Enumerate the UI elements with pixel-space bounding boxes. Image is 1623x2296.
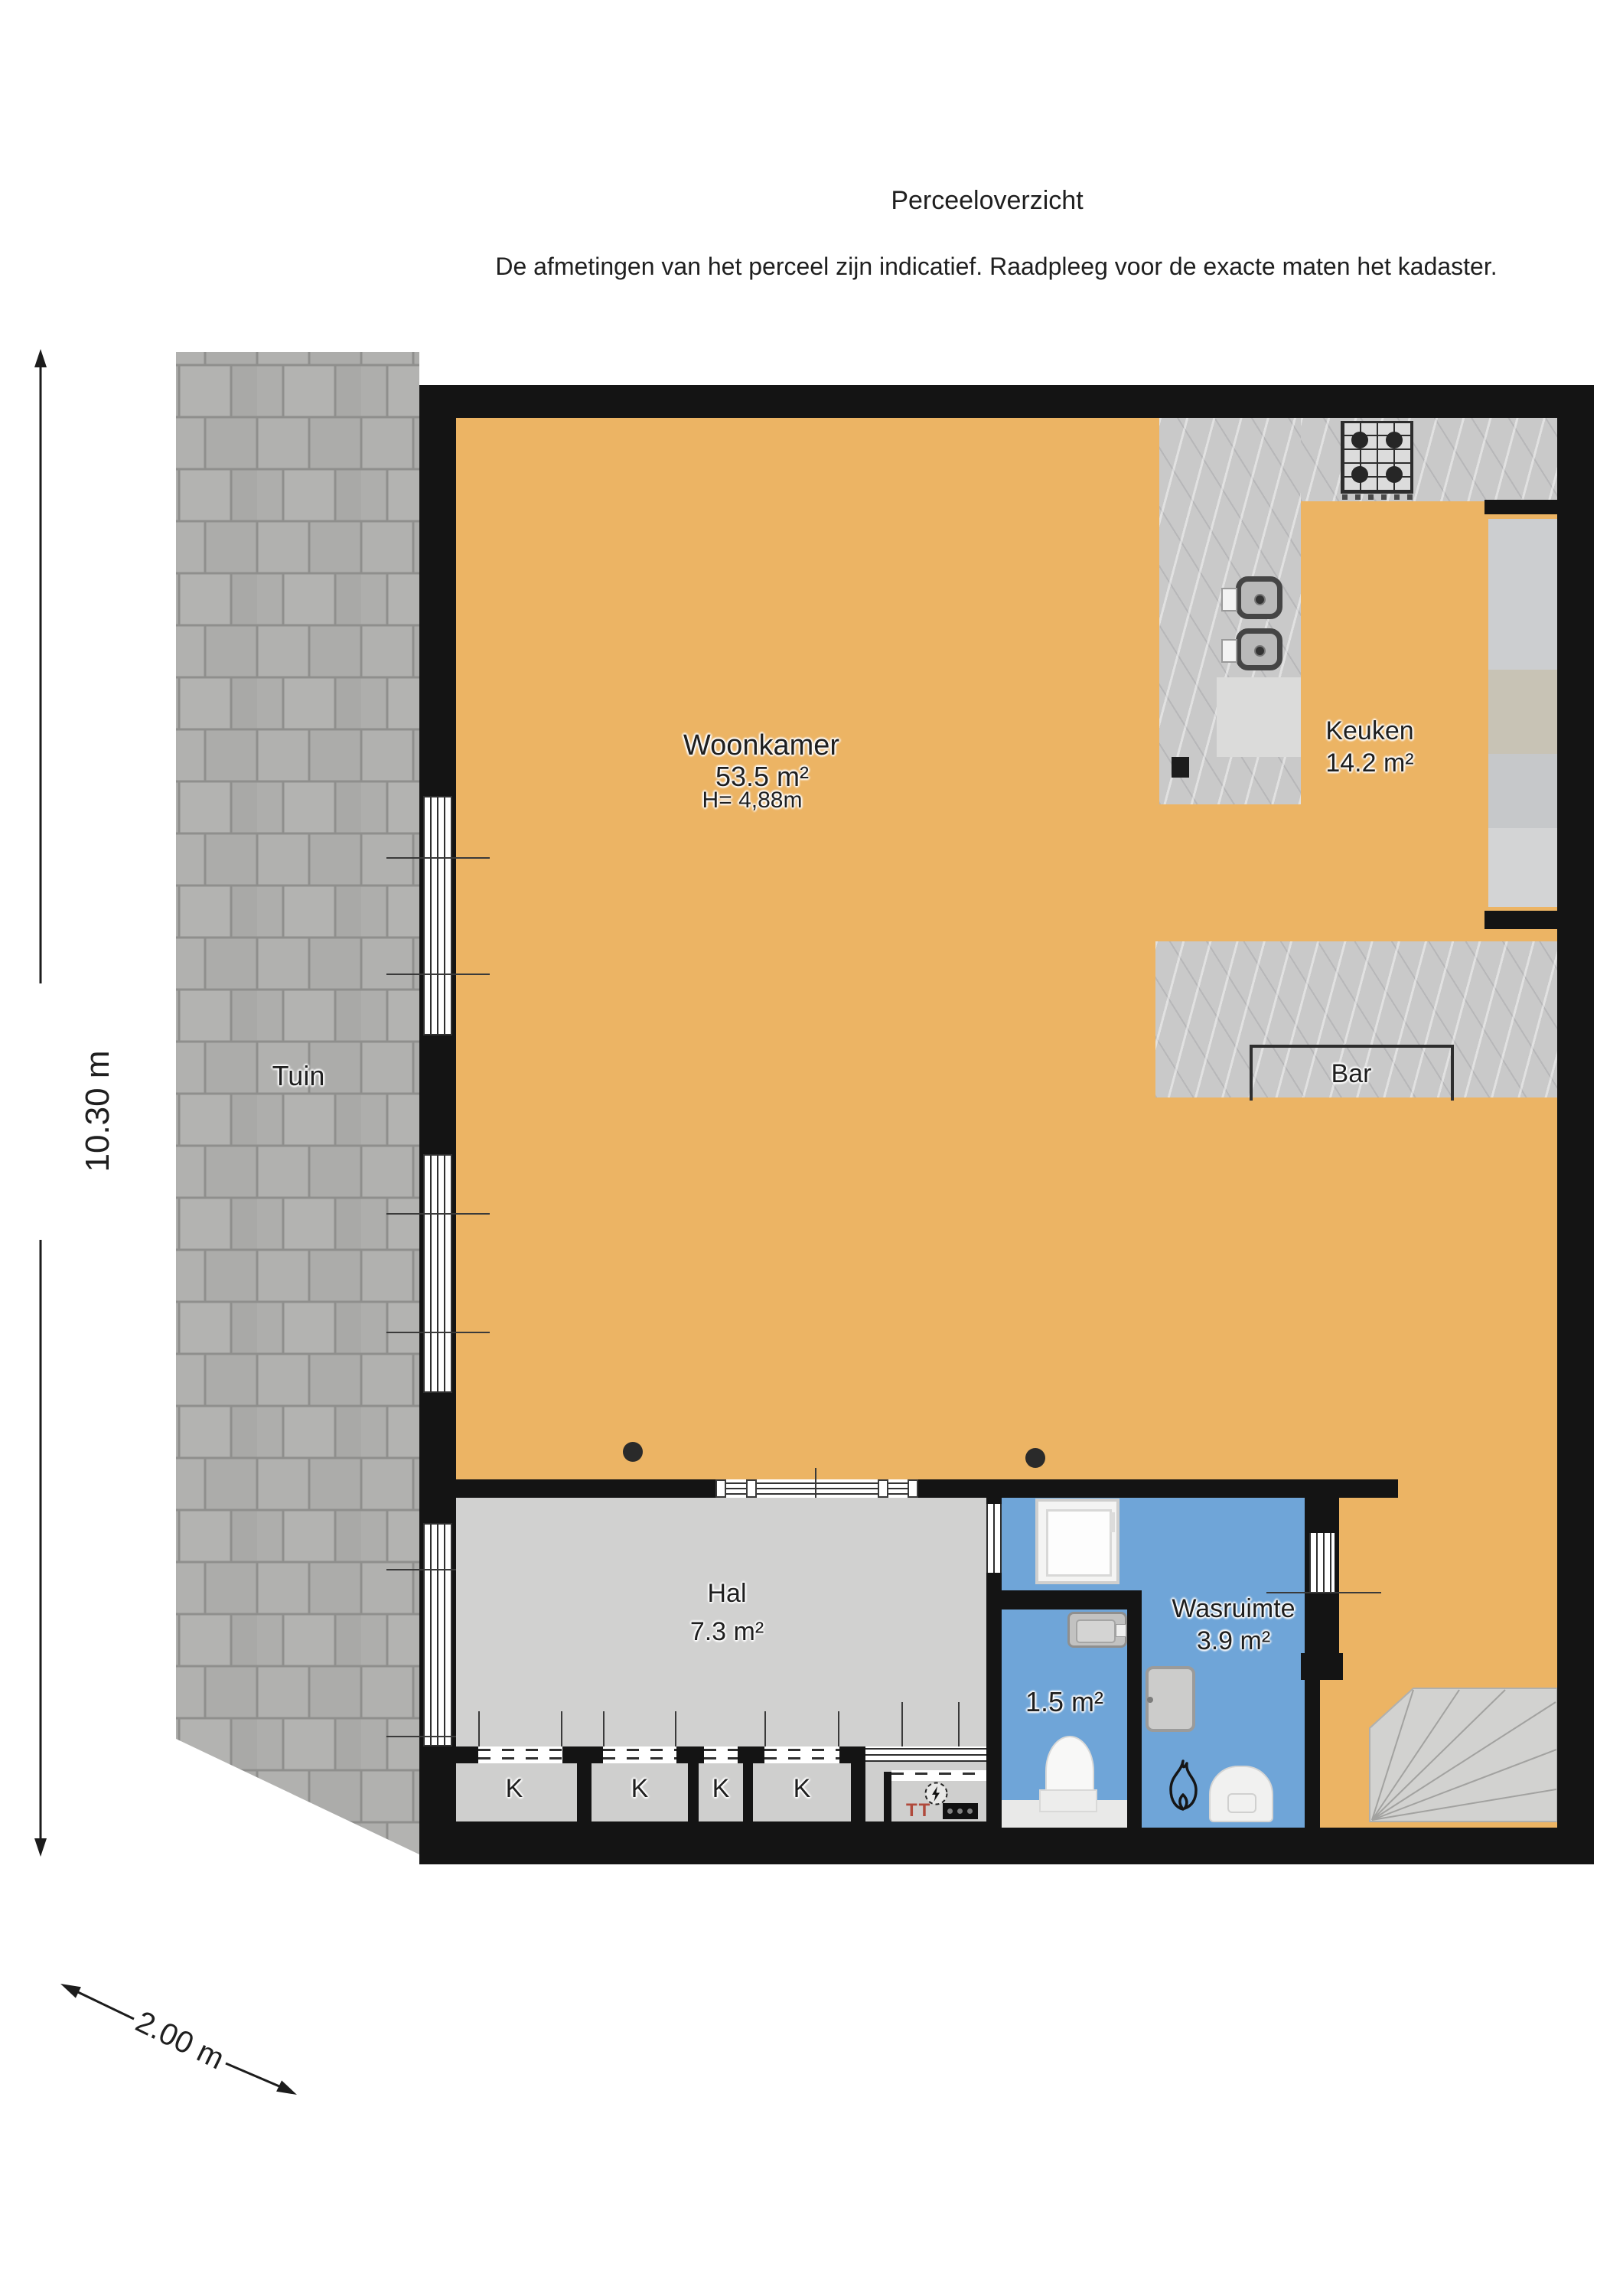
garden-area [176,352,419,1854]
burner-icon [1351,466,1368,483]
room-area-keuken: 14.2 m² [1255,748,1484,778]
room-area-hal: 7.3 m² [612,1617,842,1647]
closet-door [764,1746,839,1763]
disclaimer-text: De afmetingen van het perceel zijn indic… [415,253,1578,281]
door-tick [603,1711,605,1746]
hand-basin-icon [1067,1612,1127,1648]
sink-icon [1236,576,1282,619]
burner-icon [1386,466,1403,483]
door-jamb [746,1479,757,1498]
closet-label: K [476,1774,552,1804]
wall-stub-kitchen-bottom [1484,911,1557,929]
room-label-keuken: Keuken [1255,716,1484,746]
door-jamb [878,1479,888,1498]
window-left-2 [423,1154,452,1393]
wall-toilet-top [1002,1590,1142,1609]
door-tick [901,1702,903,1746]
meter-cupboard-door [891,1770,986,1781]
door-handle-icon [1147,1697,1153,1703]
meter-cupboard-window [865,1746,986,1762]
wall-right [1557,385,1594,1864]
window-tick [386,1332,490,1333]
basin-tap-icon [1116,1624,1126,1637]
toilet-tank [1039,1789,1097,1812]
boiler-detail [1227,1793,1256,1813]
room-label-hal: Hal [612,1579,842,1609]
drain-icon [1254,645,1266,657]
meter-box-dot [957,1808,963,1814]
closet-bottom-strip [456,1821,1002,1828]
door-hal-east [986,1504,1002,1573]
wall-wasruimte-east-lower [1305,1680,1320,1828]
door-leaf-icon [1146,1666,1195,1732]
kitchen-counter-top [1301,418,1557,501]
window-tick [386,857,490,859]
window-tick [1266,1592,1381,1593]
closet-label: K [601,1774,678,1804]
faucet-icon [1221,588,1237,612]
ceiling-light-dot [623,1442,643,1462]
door-tick [478,1711,480,1746]
basin-bowl [1076,1619,1116,1643]
window-tick [386,1213,490,1215]
wall-stub-kitchen-top [1484,500,1557,514]
closet-divider [577,1746,592,1821]
wall-stub-wasruimte [1301,1653,1343,1680]
door-tick [675,1711,676,1746]
window-tick [386,974,490,975]
appliance-block [1488,519,1557,670]
meter-box-icon [943,1803,978,1819]
faucet-icon [1221,639,1237,663]
closet-door [603,1746,676,1763]
closet-label: K [764,1774,840,1804]
room-area-toilet: 1.5 m² [988,1686,1141,1718]
wall-top [419,385,1594,418]
appliance-block [1488,754,1557,828]
window-left-3 [423,1523,452,1746]
room-label-bar: Bar [1275,1059,1428,1089]
closet-door [478,1746,562,1763]
drain-icon [1254,594,1266,605]
burner-icon [1351,432,1368,448]
closet-label: K [683,1774,759,1804]
floor-plan-page: Perceeloverzicht De afmetingen van het p… [0,0,1623,2296]
door-tick [561,1711,562,1746]
water-heater-flame-icon [1163,1759,1203,1814]
pillar [1172,757,1189,778]
door-jamb [908,1479,918,1498]
page-title: Perceeloverzicht [681,186,1293,216]
meter-cupboard-wall [884,1772,891,1821]
meter-box-dot [967,1808,973,1814]
garden-tile-pattern [176,352,419,1854]
closet-door [704,1746,738,1763]
sink-icon [1236,628,1282,670]
dimension-arrow-vertical [15,344,66,1875]
window-wasruimte [1309,1533,1335,1593]
washing-machine-icon [1035,1499,1119,1584]
room-label-tuin: Tuin [245,1060,352,1092]
burner-icon [1386,432,1403,448]
washing-machine-drum [1046,1509,1112,1577]
ceiling-light-dot [1025,1448,1045,1468]
room-label-woonkamer: Woonkamer [647,729,876,762]
meter-tt-icon: TT [906,1800,940,1821]
door-tick [958,1702,960,1746]
meter-box-dot [947,1808,953,1814]
wall-bottom [419,1828,1594,1864]
window-left-1 [423,796,452,1035]
closet-divider [851,1746,865,1821]
door-tick [838,1711,839,1746]
stairs-icon [1343,1682,1557,1828]
room-height-woonkamer: H= 4,88m [637,788,867,814]
stove-knobs [1342,494,1413,500]
appliance-block [1488,828,1557,907]
washing-machine-latch [1110,1512,1115,1532]
door-jamb [715,1479,726,1498]
appliance-block [1488,670,1557,754]
stove-icon [1341,421,1413,494]
dimension-label-vertical: 10.30 m [80,1012,116,1211]
boiler-icon [1209,1766,1273,1822]
wall-partition-south [456,1479,1398,1498]
sliding-door [715,1479,918,1498]
door-tick [764,1711,766,1746]
